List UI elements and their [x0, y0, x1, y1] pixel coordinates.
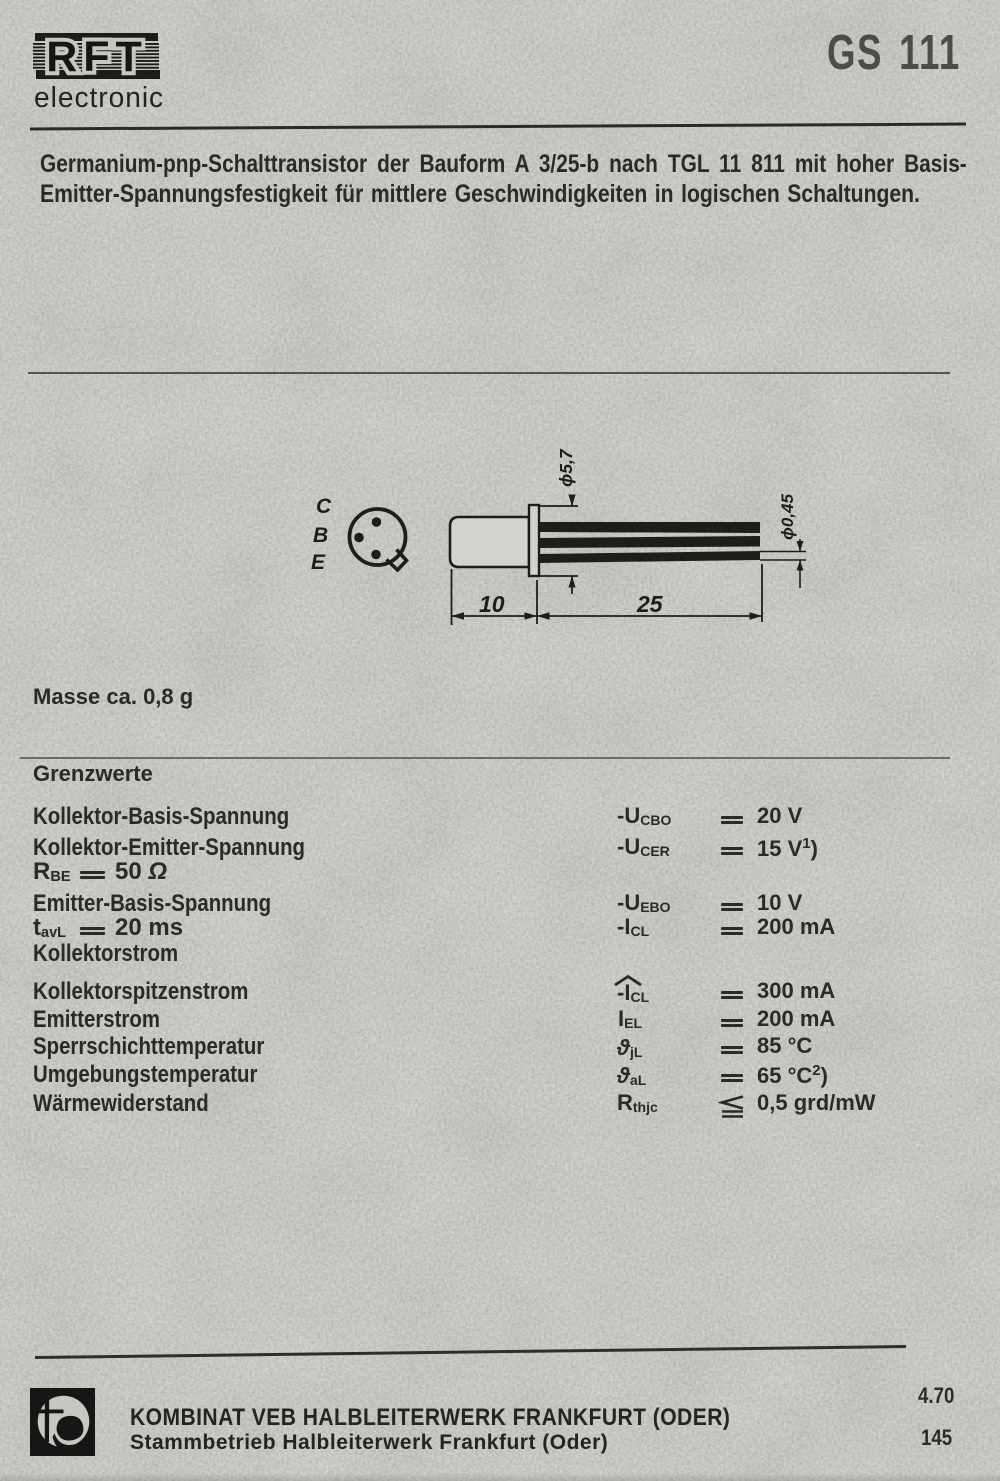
svg-text:10: 10	[479, 591, 505, 617]
svg-text:ϕ0,45: ϕ0,45	[778, 493, 797, 540]
svg-text:C: C	[316, 495, 332, 518]
svg-text:25: 25	[636, 591, 664, 617]
svg-text:RFT: RFT	[46, 33, 148, 81]
svg-text:B: B	[313, 524, 328, 547]
svg-text:E: E	[311, 551, 326, 574]
svg-text:ϕ5,7: ϕ5,7	[556, 448, 576, 487]
